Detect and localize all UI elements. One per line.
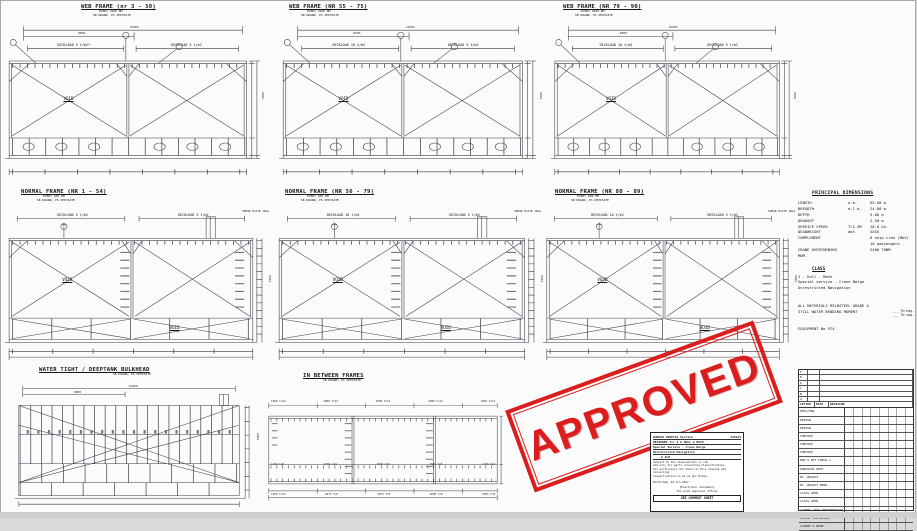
dimension-height: 5000: [261, 92, 265, 99]
panel-subtitle-drawn: SB DRAWN, PS OPPOSITE: [301, 14, 543, 18]
bv-office-note: The plan approval office: [653, 490, 741, 494]
deckload-label-left: DECKLOAD 10 t/m2: [332, 43, 365, 47]
void-label-bottom: VOID: [700, 325, 710, 330]
void-label: VOID: [62, 277, 72, 282]
signature-row: DESIGN: [799, 417, 913, 425]
dimension-sub: 8000: [353, 31, 360, 35]
panel-subtitle-drawn: SB DRAWN, PS OPPOSITE: [113, 373, 259, 377]
shear-plate-label: SHEAR PLATE 10mm: [514, 209, 541, 213]
plate-dim: 1985 t=8: [482, 492, 495, 496]
dimension-total: 12000: [129, 25, 138, 29]
signature-row: WT. WEIGHT REPR.: [799, 482, 913, 490]
void-label-bottom: VOID: [441, 325, 451, 330]
dimension-sub: 8000: [620, 31, 627, 35]
dimension-height: 5000: [793, 92, 797, 99]
plate-dim: 2000 t=12: [428, 399, 443, 403]
plate-dim: 1200 t=12: [271, 492, 286, 496]
dimension-sub: 8000: [78, 31, 85, 35]
deckload-label-right: DECKLOAD 5 t/m2: [707, 43, 738, 47]
drawing-sheet: WEB FRAME (nr 3 - 50) EVERY 2400 MM SB D…: [0, 0, 916, 513]
bureau-veritas-review-box: BUREAU VERITAS Section335324 REVIEWED fo…: [650, 432, 744, 512]
signature-row: PURCHASE DEPT.: [799, 466, 913, 474]
title-block: F E D C B A LETTERDATEREVISION PROJ/ENG …: [798, 369, 914, 511]
signature-row: CHECKED: [799, 449, 913, 457]
signature-row: DESIGN: [799, 425, 913, 433]
shear-plate-label: SHEAR PLATE 10mm: [242, 209, 269, 213]
bv-place-date: Rotterdam, 02-Jun-2017: [653, 481, 741, 485]
panel-web-frame-3: WEB FRAME (NR 79 - 90) EVERY 2400 MM SB …: [549, 4, 797, 184]
plate-dim: 2075 t=8: [377, 492, 390, 496]
void-label: VOID: [338, 96, 348, 101]
swbm-label: STILL WATER BENDING MOMENT: [798, 309, 857, 317]
plate-dim: 2000 t=12: [323, 399, 338, 403]
signature-row: ENG & DET CHECK L.: [799, 457, 913, 465]
dimension-height: 5000: [256, 433, 260, 440]
class-heading: CLASS: [812, 267, 914, 272]
signature-row: CLIENT'S REPR.: [799, 523, 913, 531]
signature-row: CLASS APPR.: [799, 490, 913, 498]
deckload-label-right: DECKLOAD 5 t/m2: [449, 213, 480, 217]
plate-dim: 2075 t=8: [325, 492, 338, 496]
pd-row: CRANE OVERTURNING MOM.2400 TONM: [798, 247, 914, 259]
panel-subtitle-drawn: SB DRAWN, PS OPPOSITE: [37, 199, 271, 203]
deckload-label-left: DECKLOAD 5 t/m2*: [57, 43, 90, 47]
page-edge: [0, 512, 917, 518]
shear-plate-label: SHEAR PLATE 10mm: [768, 209, 795, 213]
panel-normal-frame-1: NORMAL FRAME (NR 1 - 54) EVERY 600 MM SB…: [3, 189, 271, 367]
plate-dim: 2000 t=8: [324, 462, 337, 466]
principal-dimensions-heading: PRINCIPAL DIMENSIONS: [812, 191, 914, 196]
plate-dim: 1200 t=8: [271, 462, 284, 466]
swbm-note: STILL WATER BENDING MOMENT ___ Tm hog. _…: [798, 309, 914, 317]
bv-comment-sheet-note: SEE COMMENT SHEET: [653, 495, 741, 502]
signature-row: CHECKED: [799, 433, 913, 441]
panel-subtitle-drawn: SB DRAWN, PS OPPOSITE: [323, 379, 509, 383]
plate-dim: 2000 t=8: [377, 462, 390, 466]
deckload-label-left: DECKLOAD 10 t/m2: [591, 213, 624, 217]
plate-dim: 2000 t=8: [429, 462, 442, 466]
plate-dim: 2000 t=8: [430, 492, 443, 496]
panel-subtitle-drawn: SB DRAWN, PS OPPOSITE: [301, 199, 543, 203]
deckload-label-right: DECKLOAD 5 t/m2: [707, 213, 738, 217]
void-label: VOID: [606, 96, 616, 101]
plate-dim: 1200 t=12: [271, 399, 286, 403]
void-label-bottom: VOID: [169, 325, 179, 330]
plate-dim: 1200 t=8: [482, 462, 495, 466]
signature-row: CLASS APPR.: [799, 498, 913, 506]
plate-dim: 2000 t=12: [376, 399, 391, 403]
dimension-total: 12000: [668, 25, 677, 29]
panel-web-frame-1: WEB FRAME (nr 3 - 50) EVERY 2400 MM SB D…: [3, 4, 265, 184]
signature-row: CHECKED: [799, 441, 913, 449]
web-frame-section-drawing: [3, 22, 261, 178]
deckload-label-left: DECKLOAD 10 t/m2: [327, 213, 360, 217]
plate-dimension-row-bottom: 1200 t=122075 t=82075 t=82000 t=81985 t=…: [271, 492, 495, 496]
panel-web-frame-2: WEB FRAME (NR 55 - 75) EVERY 2400 MM SB …: [277, 4, 543, 184]
panel-subtitle-drawn: SB DRAWN, PS OPPOSITE: [575, 14, 797, 18]
panel-bulkhead: WATER TIGHT / DEEPTANK BULKHEAD SB DRAWN…: [7, 367, 259, 513]
web-frame-section-drawing: [277, 22, 537, 178]
panel-in-between-frames: IN BETWEEN FRAMES SB DRAWN, PS OPPOSITE …: [263, 373, 509, 509]
equipment-note: EQUIPMENT No 974: [798, 326, 914, 331]
void-label: VOID: [333, 277, 343, 282]
signature-row: WT. WEIGHT: [799, 474, 913, 482]
normal-frame-section-drawing: [273, 209, 537, 363]
deckload-label-right: DECKLOAD 5 t/m2: [448, 43, 479, 47]
principal-dimensions-block: PRINCIPAL DIMENSIONS LENGTHo.a.65.00 m B…: [798, 191, 914, 331]
dimension-sub: 8000: [74, 390, 81, 394]
plate-dimension-row-top: 1200 t=122000 t=122000 t=122000 t=121200…: [271, 399, 495, 403]
web-frame-section-drawing: [549, 22, 793, 178]
plate-dimension-row-mid: 1200 t=82000 t=82000 t=82000 t=81200 t=8: [271, 462, 495, 466]
deckload-label-left: DECKLOAD 5 t/m2: [57, 213, 88, 217]
class-line: Unrestricted Navigation: [798, 285, 914, 291]
normal-frame-section-drawing: [541, 209, 791, 363]
panel-normal-frame-3: NORMAL FRAME (NR 80 - 89) EVERY 600 MM S…: [541, 189, 797, 367]
normal-frame-section-drawing: [3, 209, 265, 363]
bv-alm-line: ⊕ ALM: [653, 455, 741, 460]
plate-dim: 1200 t=12: [480, 399, 495, 403]
panel-subtitle-drawn: SB DRAWN, PS OPPOSITE: [571, 199, 797, 203]
panel-subtitle-drawn: SB DRAWN, PS OPPOSITE: [93, 14, 265, 18]
deckload-label-right: DECKLOAD 5 t/m2: [171, 43, 202, 47]
in-between-frames-drawing: [263, 397, 503, 503]
swbm-units: ___ Tm hog. ___ Tm sag.: [893, 309, 914, 317]
void-label: VOID: [597, 277, 607, 282]
dimension-height: 5000: [268, 275, 272, 282]
dimension-total: 12000: [128, 384, 137, 388]
dimension-total: 12000: [405, 25, 414, 29]
signature-row: PROJ/ENG: [799, 408, 913, 416]
bulkhead-drawing: [7, 383, 253, 507]
panel-normal-frame-2: NORMAL FRAME (NR 56 - 79) EVERY 600 MM S…: [273, 189, 543, 367]
deckload-label-left: DECKLOAD 10 t/m2: [600, 43, 633, 47]
deckload-label-right: DECKLOAD 5 t/m2: [178, 213, 209, 217]
dimension-height: 5000: [539, 92, 543, 99]
void-label: VOID: [63, 96, 73, 101]
bv-smallprint: Classification to be as per Rules.: [653, 475, 741, 479]
